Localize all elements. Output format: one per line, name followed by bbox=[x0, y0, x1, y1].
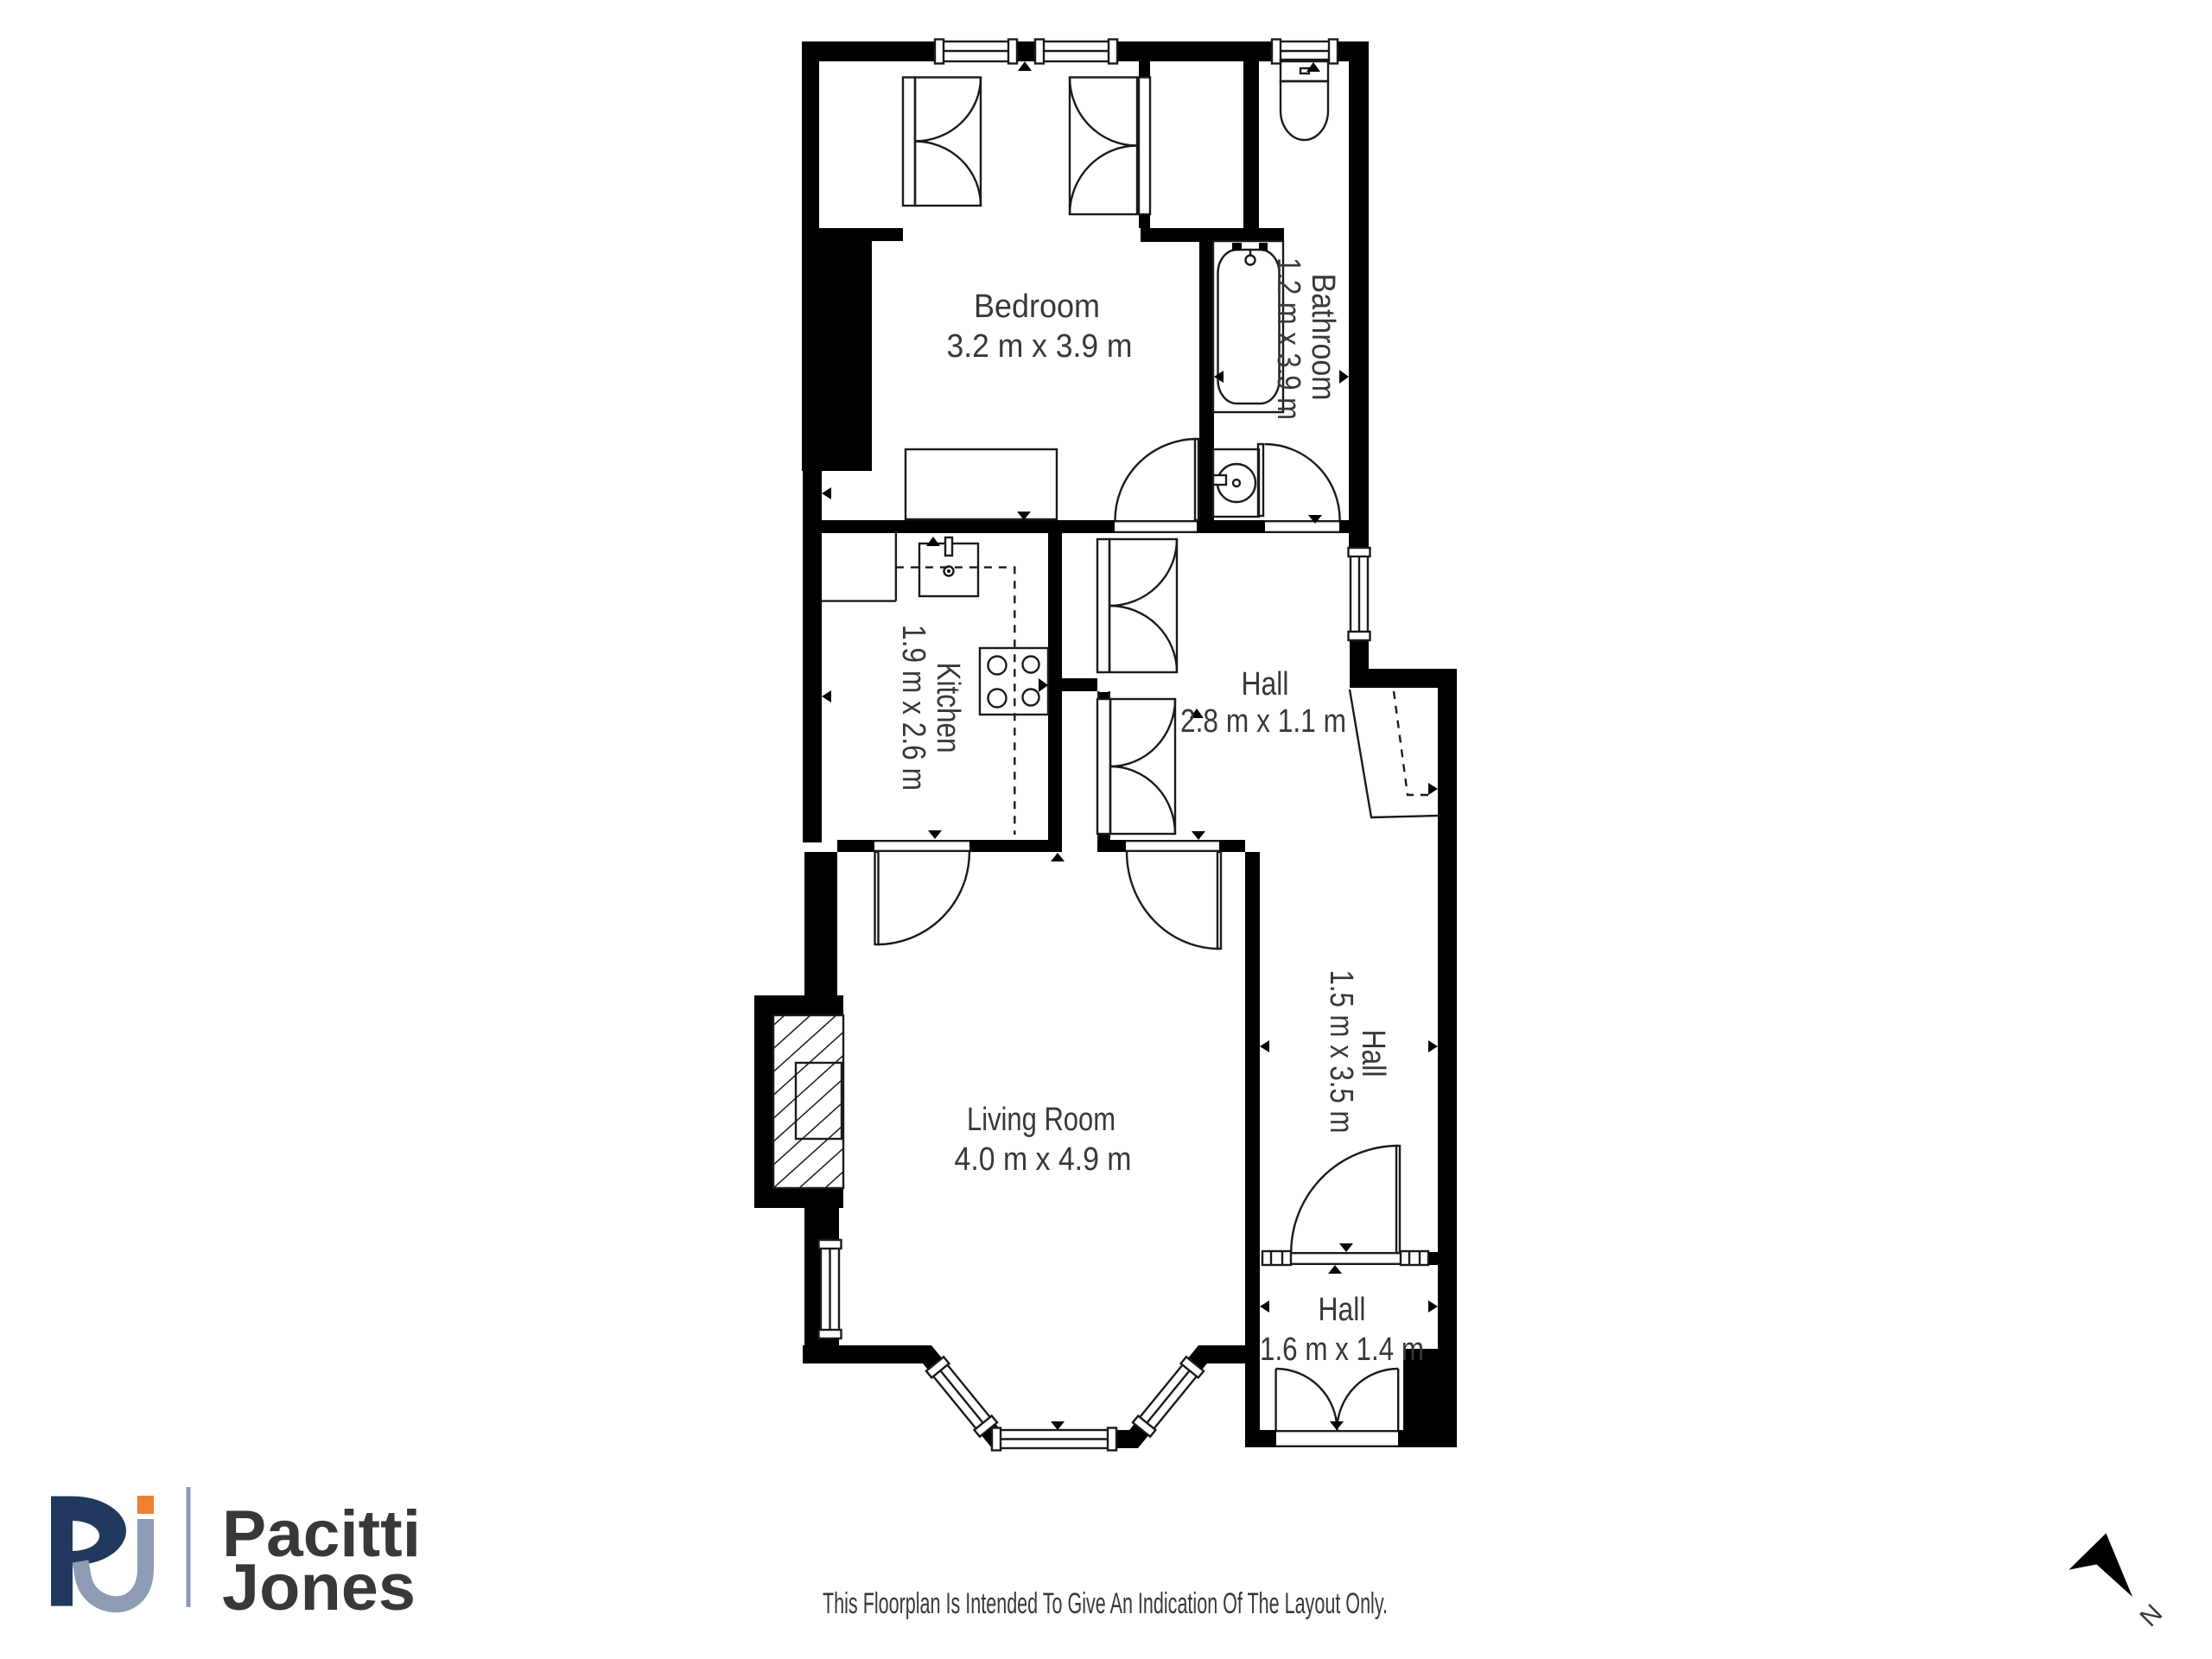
svg-text:1.2 m x 3.9 m: 1.2 m x 3.9 m bbox=[1270, 257, 1306, 420]
svg-text:1.6 m x 1.4 m: 1.6 m x 1.4 m bbox=[1260, 1332, 1424, 1368]
svg-text:This Floorplan Is Intended To: This Floorplan Is Intended To Give An In… bbox=[823, 1587, 1388, 1620]
svg-text:Jones: Jones bbox=[222, 1551, 416, 1624]
svg-text:Living Room: Living Room bbox=[967, 1102, 1116, 1138]
svg-text:Bathroom: Bathroom bbox=[1305, 274, 1341, 401]
svg-text:Bedroom: Bedroom bbox=[974, 289, 1100, 325]
svg-text:3.2 m x 3.9 m: 3.2 m x 3.9 m bbox=[947, 328, 1133, 365]
svg-text:Kitchen: Kitchen bbox=[930, 663, 966, 753]
svg-text:1.5 m x 3.5 m: 1.5 m x 3.5 m bbox=[1323, 970, 1359, 1134]
svg-text:4.0 m x 4.9 m: 4.0 m x 4.9 m bbox=[955, 1141, 1132, 1178]
svg-text:Hall: Hall bbox=[1319, 1292, 1366, 1328]
svg-text:Hall: Hall bbox=[1355, 1030, 1391, 1077]
svg-text:2.8 m x 1.1 m: 2.8 m x 1.1 m bbox=[1180, 703, 1346, 740]
svg-text:Hall: Hall bbox=[1242, 666, 1289, 702]
svg-text:1.9 m x 2.6 m: 1.9 m x 2.6 m bbox=[895, 625, 931, 791]
